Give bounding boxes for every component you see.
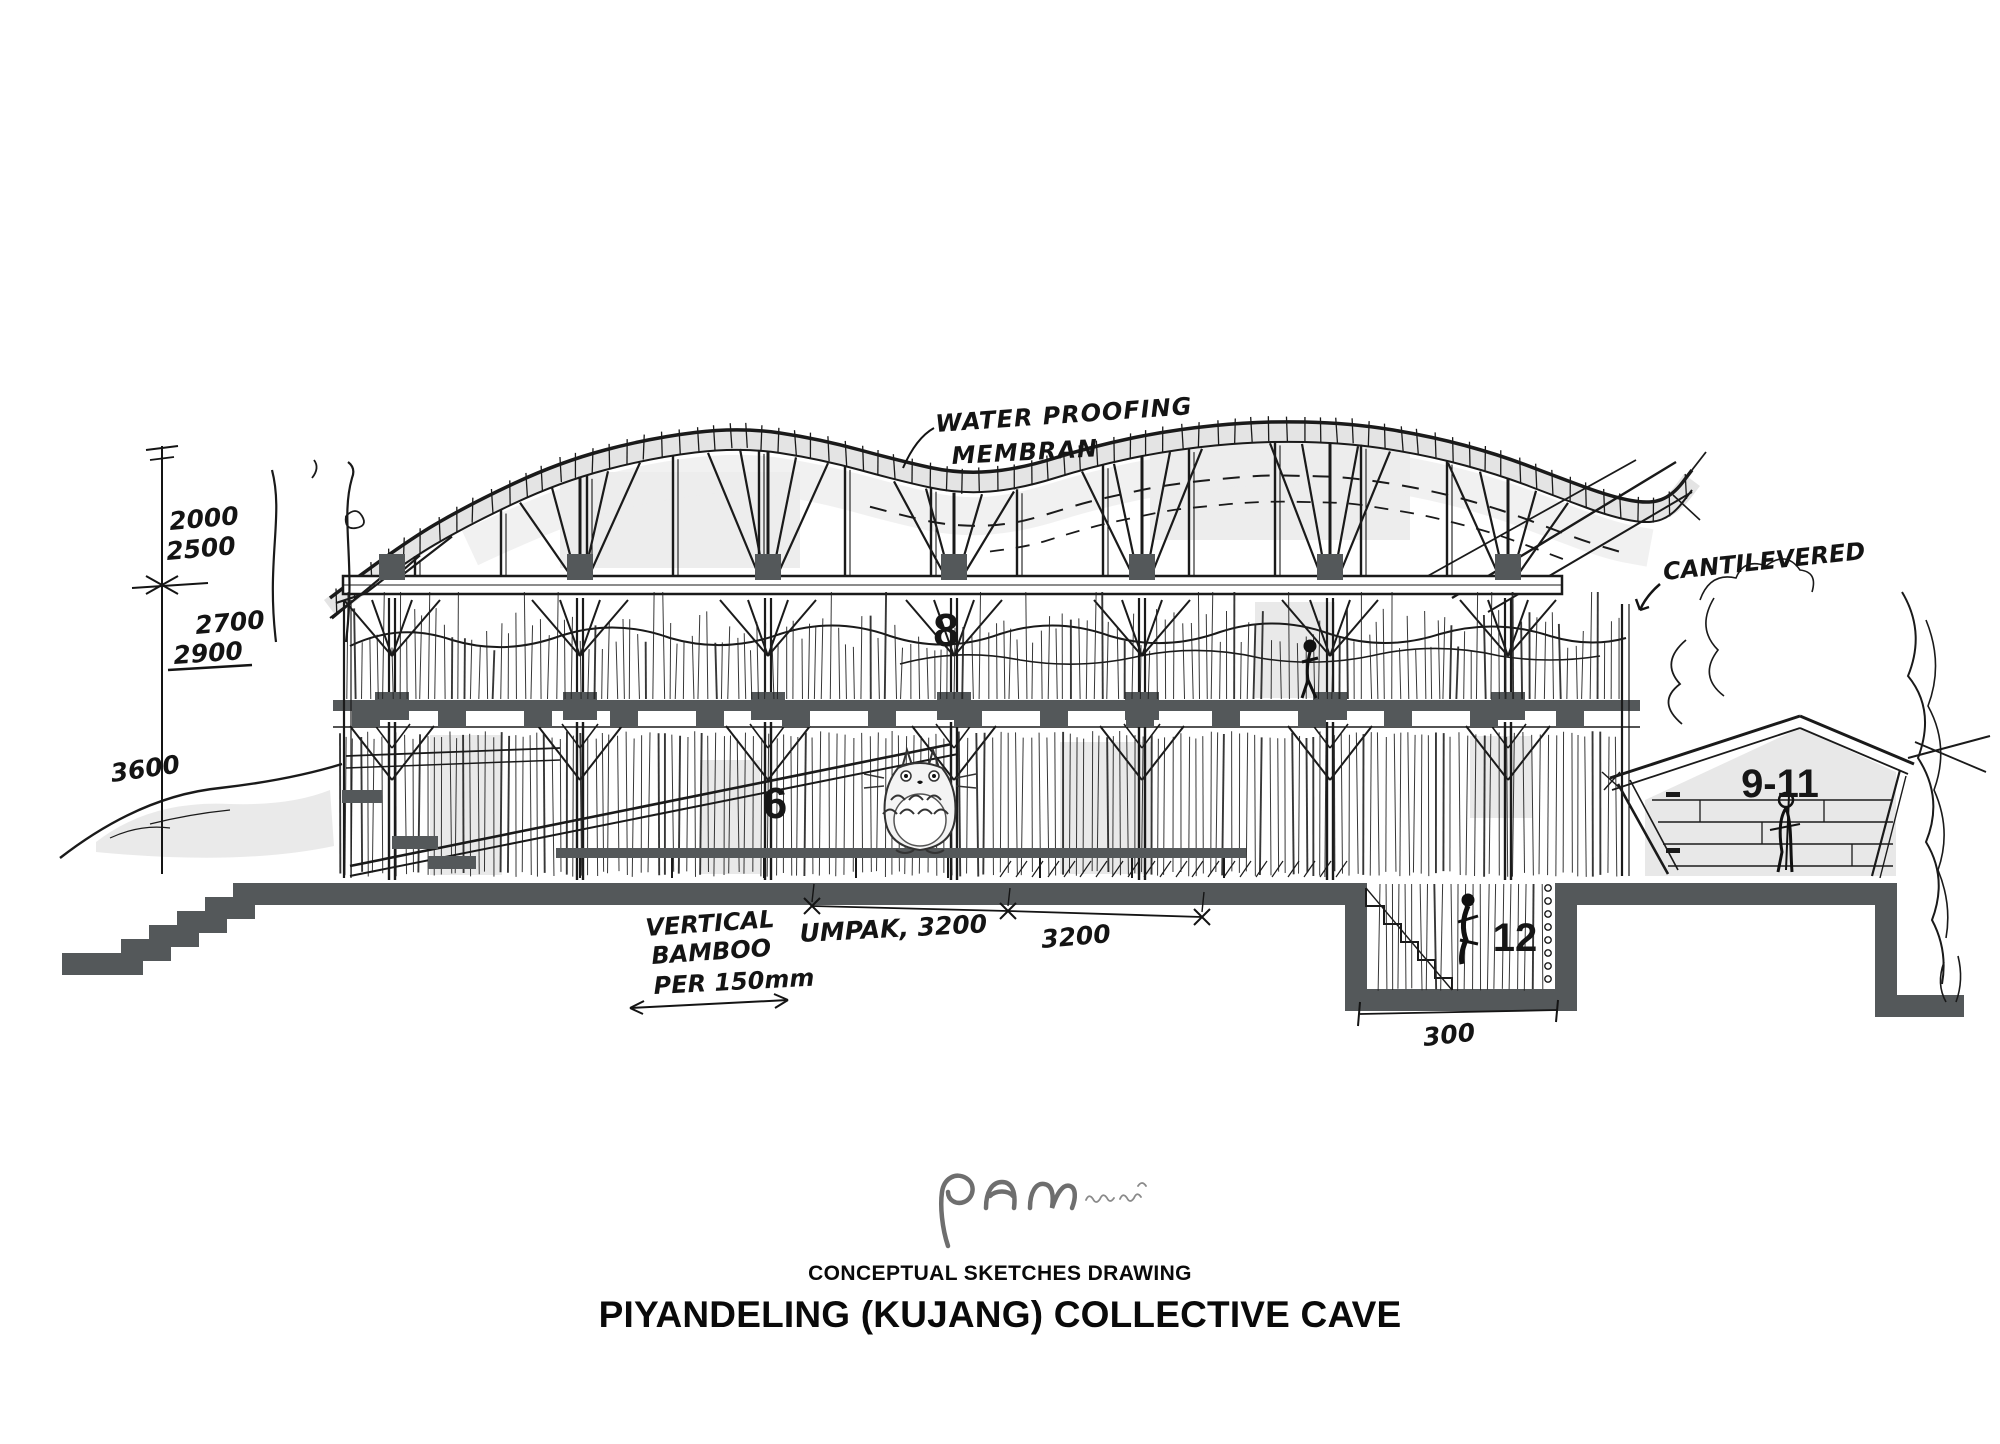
waterproofing-note: WATER PROOFING [934,392,1193,438]
cantilevered-note: CANTILEVERED [1662,537,1867,586]
ground-hatch-scribble [1000,861,1347,877]
bamboo-note-3: PER 150mm [653,964,815,1000]
person-figure-pit [1458,894,1478,964]
dim-bay-umpak: UMPAK, 3200 [799,909,988,948]
drawing-type-label: CONCEPTUAL SKETCHES DRAWING [0,1262,2000,1286]
dim-roof-lower: 2500 [165,531,237,566]
zone-label-pit: 12 [1493,916,1538,960]
page-title: PIYANDELING (KUJANG) COLLECTIVE CAVE [0,1294,2000,1336]
zone-label-main-hall: 6 [763,779,787,828]
floor-joists [352,711,1584,727]
zone-label-annex: 9-11 [1741,762,1819,806]
dim-bay: 3200 [1040,919,1112,954]
studio-logo-icon [941,1176,1146,1246]
zone-label-upper-floor: 8 [933,604,959,656]
section-drawing: WATER PROOFING MEMBRAN CANTILEVERED 2000… [0,0,2000,1444]
pit-wall-hatch [1545,885,1551,982]
planting-wavy-lines [350,623,1626,664]
dim-level-upper: 2700 [194,605,266,640]
dim-level-lower: 2900 [172,636,243,670]
dim-ground-height: 3600 [109,750,182,788]
dim-pit-width: 300 [1422,1018,1477,1052]
sketch-canvas: WATER PROOFING MEMBRAN CANTILEVERED 2000… [0,0,2000,1444]
